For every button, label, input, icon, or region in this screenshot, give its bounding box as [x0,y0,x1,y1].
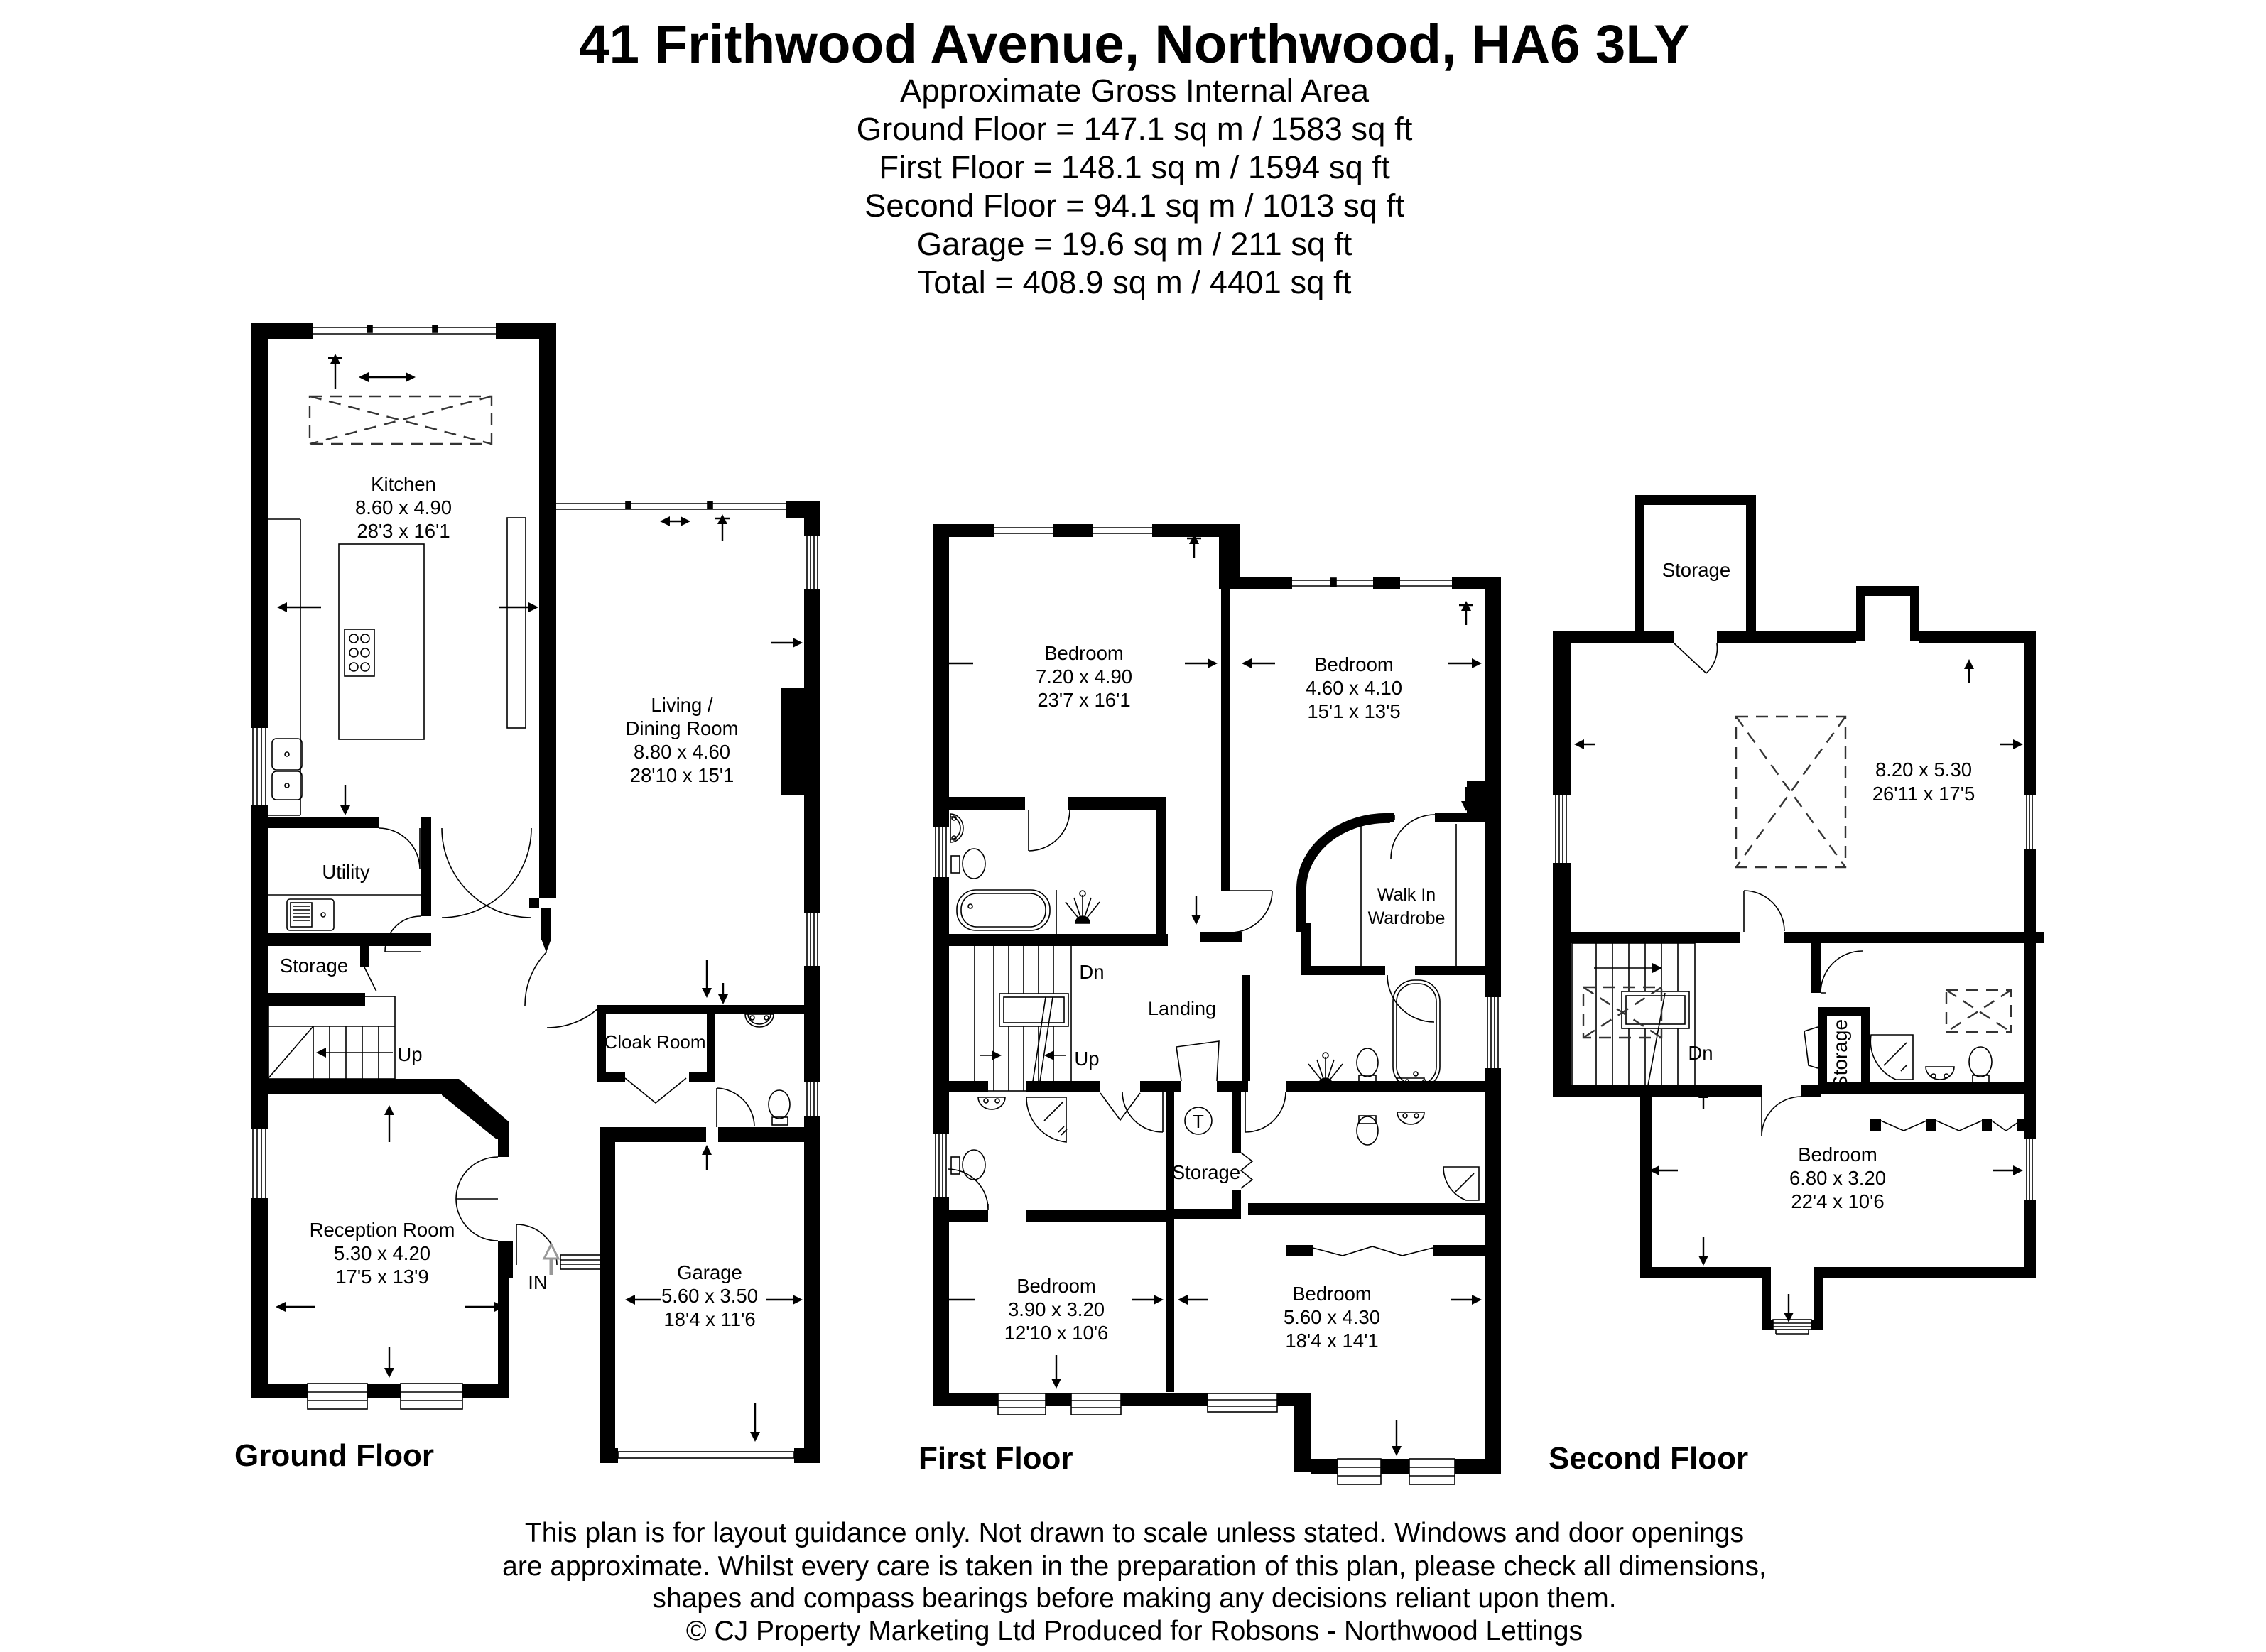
svg-text:Bedroom: Bedroom [1017,1275,1096,1297]
svg-text:6.80 x 3.20: 6.80 x 3.20 [1789,1167,1886,1189]
svg-text:41 Frithwood Avenue, Northwood: 41 Frithwood Avenue, Northwood, HA6 3LY [579,14,1690,75]
svg-text:5.30 x 4.20: 5.30 x 4.20 [334,1242,430,1264]
svg-text:Ground Floor: Ground Floor [234,1438,434,1473]
svg-text:Up: Up [397,1043,422,1065]
svg-text:This plan is for layout guidan: This plan is for layout guidance only. N… [525,1518,1744,1548]
svg-text:Landing: Landing [1148,998,1216,1019]
svg-text:Up: Up [1074,1048,1099,1070]
svg-text:IN: IN [528,1271,548,1293]
svg-text:28'10 x 15'1: 28'10 x 15'1 [630,764,734,786]
svg-text:8.80 x 4.60: 8.80 x 4.60 [634,741,730,763]
svg-text:3.90 x 3.20: 3.90 x 3.20 [1008,1298,1105,1320]
svg-text:Wardrobe: Wardrobe [1368,908,1446,928]
svg-text:17'5 x 13'9: 17'5 x 13'9 [335,1266,428,1288]
svg-text:Storage: Storage [1172,1161,1240,1183]
svg-text:Storage: Storage [280,955,348,977]
svg-text:26'11 x 17'5: 26'11 x 17'5 [1872,783,1975,805]
svg-text:Living /: Living / [651,694,712,716]
svg-text:shapes and compass bearings be: shapes and compass bearings before makin… [652,1583,1616,1614]
svg-text:18'4 x 14'1: 18'4 x 14'1 [1285,1330,1378,1352]
svg-text:First Floor = 148.1 sq m / 159: First Floor = 148.1 sq m / 1594 sq ft [879,149,1390,185]
svg-text:Walk In: Walk In [1377,885,1436,905]
svg-text:Dining Room: Dining Room [626,717,739,739]
svg-text:Second Floor = 94.1 sq m / 101: Second Floor = 94.1 sq m / 1013 sq ft [864,188,1404,224]
svg-text:Dn: Dn [1079,961,1104,983]
svg-text:Storage: Storage [1662,559,1730,581]
svg-text:18'4 x 11'6: 18'4 x 11'6 [663,1308,755,1330]
svg-text:Storage: Storage [1829,1019,1851,1089]
svg-text:28'3 x 16'1: 28'3 x 16'1 [357,520,450,542]
svg-text:are approximate. Whilst every: are approximate. Whilst every care is ta… [502,1551,1767,1582]
svg-text:Total = 408.9 sq m / 4401 sq f: Total = 408.9 sq m / 4401 sq ft [918,264,1352,300]
svg-text:5.60 x 4.30: 5.60 x 4.30 [1284,1306,1380,1328]
svg-text:Dn: Dn [1688,1042,1713,1064]
svg-text:Reception Room: Reception Room [310,1219,455,1241]
svg-text:Garage = 19.6 sq m / 211 sq ft: Garage = 19.6 sq m / 211 sq ft [917,226,1352,262]
svg-text:Bedroom: Bedroom [1292,1283,1372,1305]
svg-text:Garage: Garage [677,1261,742,1283]
svg-text:T: T [1193,1111,1204,1132]
svg-text:7.20 x 4.90: 7.20 x 4.90 [1036,665,1132,688]
svg-text:8.20 x 5.30: 8.20 x 5.30 [1875,759,1972,781]
svg-text:Bedroom: Bedroom [1314,653,1394,675]
svg-text:4.60 x 4.10: 4.60 x 4.10 [1306,677,1402,699]
svg-text:15'1 x 13'5: 15'1 x 13'5 [1307,700,1400,722]
svg-text:First Floor: First Floor [918,1441,1073,1476]
svg-text:Second Floor: Second Floor [1549,1441,1748,1476]
svg-text:Bedroom: Bedroom [1044,642,1124,664]
svg-text:23'7 x 16'1: 23'7 x 16'1 [1037,689,1130,711]
svg-text:Approximate Gross Internal Are: Approximate Gross Internal Area [900,72,1370,109]
svg-text:8.60 x 4.90: 8.60 x 4.90 [355,496,452,518]
svg-text:Cloak Room: Cloak Room [604,1031,705,1053]
svg-text:5.60 x 3.50: 5.60 x 3.50 [661,1285,758,1307]
svg-text:12'10 x 10'6: 12'10 x 10'6 [1004,1322,1109,1344]
svg-text:22'4 x 10'6: 22'4 x 10'6 [1791,1190,1884,1212]
svg-text:© CJ Property Marketing Ltd Pr: © CJ Property Marketing Ltd Produced for… [686,1616,1583,1646]
svg-text:Kitchen: Kitchen [371,473,436,495]
svg-text:Bedroom: Bedroom [1798,1143,1877,1165]
svg-text:Ground Floor = 147.1 sq m / 15: Ground Floor = 147.1 sq m / 1583 sq ft [857,111,1413,147]
svg-text:Utility: Utility [322,861,369,883]
